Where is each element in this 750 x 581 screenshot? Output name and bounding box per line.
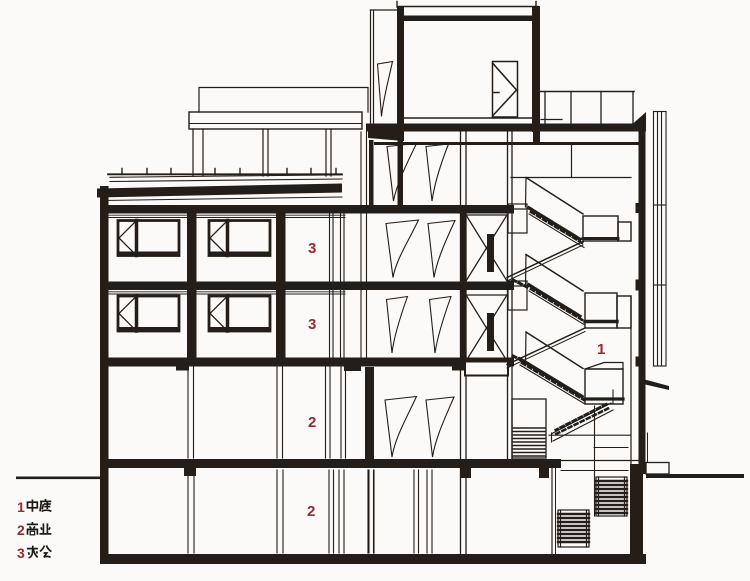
- svg-text:2: 2: [307, 503, 315, 520]
- svg-text:2: 2: [17, 522, 25, 538]
- svg-text:2: 2: [308, 414, 316, 431]
- svg-text:1: 1: [17, 499, 25, 515]
- svg-text:3: 3: [17, 545, 25, 561]
- svg-text:3: 3: [308, 316, 316, 333]
- svg-text:1: 1: [597, 341, 605, 358]
- svg-text:3: 3: [308, 240, 316, 257]
